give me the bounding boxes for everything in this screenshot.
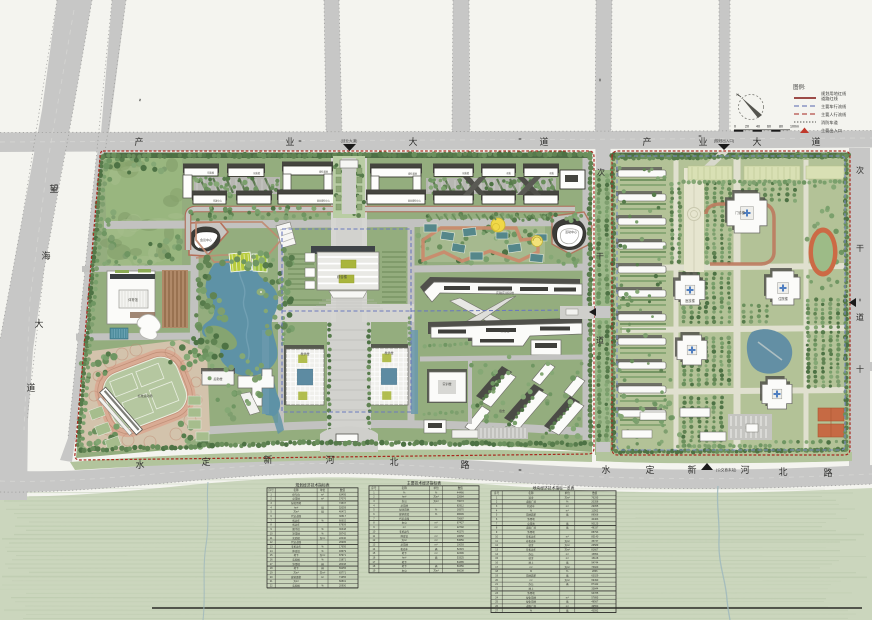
- svg-text:办公: 办公: [402, 499, 408, 503]
- svg-text:万m²: 万m²: [320, 554, 326, 557]
- svg-text:机动车: 机动车: [400, 547, 408, 551]
- svg-text:m²: m²: [435, 539, 438, 542]
- svg-text:m²: m²: [403, 526, 406, 529]
- svg-text:非机动车: 非机动车: [526, 539, 537, 543]
- svg-text:用地面积: 用地面积: [526, 513, 537, 517]
- svg-text:m²: m²: [566, 509, 569, 512]
- svg-text:后勤楼: 后勤楼: [213, 376, 222, 381]
- svg-text:水: 水: [601, 464, 610, 475]
- svg-text:实验楼: 实验楼: [500, 328, 509, 333]
- svg-text:实验楼: 实验楼: [292, 536, 300, 540]
- svg-text:22040: 22040: [339, 537, 347, 540]
- svg-text:新: 新: [263, 454, 272, 465]
- svg-text:名称: 名称: [528, 491, 534, 495]
- svg-text:数值: 数值: [340, 488, 346, 492]
- svg-text:63029: 63029: [591, 575, 599, 578]
- svg-text:40463: 40463: [591, 518, 599, 521]
- svg-text:机动车: 机动车: [527, 504, 535, 508]
- svg-text:m²: m²: [435, 526, 438, 529]
- svg-text:万m²: 万m²: [564, 549, 570, 552]
- svg-text:标准运动场: 标准运动场: [137, 393, 152, 398]
- svg-text:大: 大: [752, 136, 761, 147]
- svg-text:73920: 73920: [591, 566, 599, 569]
- svg-text:绿化用地: 绿化用地: [291, 501, 302, 505]
- svg-text:57895: 57895: [591, 596, 599, 599]
- svg-text:m²: m²: [530, 579, 533, 582]
- svg-text:20358: 20358: [591, 501, 599, 504]
- svg-text:万m²: 万m²: [293, 580, 299, 583]
- svg-text:水: 水: [135, 459, 144, 470]
- svg-text:净用地: 净用地: [527, 530, 535, 534]
- svg-text:20: 20: [745, 125, 749, 129]
- svg-text:宿舍: 宿舍: [528, 543, 534, 547]
- svg-text:26589: 26589: [591, 544, 599, 547]
- svg-text:万m²: 万m²: [293, 572, 299, 575]
- svg-text:76295: 76295: [591, 496, 599, 499]
- svg-text:m²: m²: [435, 535, 438, 538]
- svg-text:宿舍: 宿舍: [499, 408, 505, 413]
- svg-text:道: 道: [539, 136, 548, 147]
- svg-text:业: 业: [698, 137, 707, 147]
- svg-text:2866: 2866: [592, 570, 598, 573]
- svg-text:万m²: 万m²: [564, 566, 570, 569]
- svg-text:道: 道: [811, 136, 820, 147]
- svg-text:(规划出入口): (规划出入口): [714, 138, 734, 143]
- svg-text:69255: 69255: [339, 567, 347, 570]
- svg-text:次: 次: [597, 167, 605, 177]
- svg-text:85140: 85140: [591, 535, 599, 538]
- svg-text:52315: 52315: [457, 548, 465, 551]
- svg-text:数值: 数值: [458, 486, 464, 490]
- svg-text:总用地: 总用地: [400, 503, 408, 507]
- svg-text:67427: 67427: [457, 522, 465, 525]
- svg-text:hm²: hm²: [294, 506, 298, 509]
- svg-text:80: 80: [779, 125, 783, 129]
- svg-text:35737: 35737: [591, 540, 599, 543]
- svg-text:33844: 33844: [591, 588, 599, 591]
- svg-text:定: 定: [201, 456, 210, 467]
- svg-text:18658: 18658: [457, 535, 465, 538]
- svg-text:十: 十: [856, 364, 864, 374]
- svg-text:hm²: hm²: [402, 557, 406, 560]
- svg-text:停车位: 停车位: [292, 492, 300, 496]
- svg-text:地下: 地下: [402, 551, 408, 555]
- svg-text:实验楼: 实验楼: [292, 584, 300, 588]
- svg-text:万m²: 万m²: [433, 496, 439, 499]
- svg-text:10093: 10093: [457, 544, 465, 547]
- svg-text:非机动车: 非机动车: [291, 545, 302, 549]
- svg-text:22792: 22792: [457, 526, 465, 529]
- svg-text:教学楼: 教学楼: [300, 351, 309, 356]
- svg-text:单位: 单位: [434, 486, 440, 490]
- svg-text:29055: 29055: [591, 505, 599, 508]
- svg-text:m²: m²: [435, 544, 438, 547]
- svg-text:66008: 66008: [457, 570, 465, 573]
- svg-text:产: 产: [134, 136, 143, 147]
- svg-text:93679: 93679: [339, 550, 347, 553]
- svg-text:北: 北: [389, 457, 398, 467]
- svg-text:建筑面积: 建筑面积: [291, 575, 302, 579]
- svg-text:名称: 名称: [402, 486, 408, 490]
- svg-text:实验楼: 实验楼: [292, 558, 300, 562]
- svg-text:干: 干: [596, 252, 604, 261]
- svg-text:非机动车: 非机动车: [526, 534, 537, 538]
- svg-text:办公: 办公: [402, 521, 408, 525]
- svg-text:绿化用地: 绿化用地: [526, 600, 537, 604]
- svg-text:40472: 40472: [339, 511, 347, 514]
- svg-text:30517: 30517: [339, 515, 347, 518]
- svg-text:大: 大: [408, 136, 417, 147]
- svg-text:万m²: 万m²: [564, 496, 570, 499]
- svg-text:98699: 98699: [457, 513, 465, 516]
- svg-text:医技楼: 医技楼: [685, 298, 695, 303]
- svg-text:60: 60: [767, 125, 771, 129]
- svg-text:93785: 93785: [591, 592, 599, 595]
- svg-text:15854: 15854: [591, 553, 599, 556]
- svg-text:万m²: 万m²: [320, 537, 326, 540]
- svg-text:图书馆: 图书馆: [292, 527, 300, 531]
- svg-text:60801: 60801: [339, 580, 347, 583]
- svg-text:m²: m²: [435, 522, 438, 525]
- svg-text:N: N: [736, 92, 739, 97]
- svg-text:河: 河: [740, 464, 749, 475]
- svg-text:道路广场: 道路广场: [526, 500, 537, 504]
- svg-text:17695: 17695: [339, 546, 347, 549]
- svg-text:万m²: 万m²: [320, 572, 326, 575]
- svg-text:57076: 57076: [339, 498, 347, 501]
- svg-text:90125: 90125: [591, 522, 599, 525]
- svg-text:11562: 11562: [591, 509, 598, 512]
- svg-text:建筑密度: 建筑密度: [399, 512, 410, 516]
- svg-text:海: 海: [41, 250, 50, 261]
- svg-text:m²: m²: [566, 535, 569, 538]
- svg-text:宿舍: 宿舍: [528, 495, 534, 499]
- svg-text:m²: m²: [321, 498, 324, 501]
- svg-text:教学楼: 教学楼: [384, 350, 393, 355]
- svg-text:机动车: 机动车: [292, 518, 300, 522]
- svg-text:万m²: 万m²: [433, 570, 439, 573]
- svg-text:万m²: 万m²: [293, 511, 299, 514]
- svg-text:100m: 100m: [790, 125, 799, 129]
- svg-text:主要人行流线: 主要人行流线: [821, 111, 847, 118]
- svg-text:绿化用地: 绿化用地: [399, 508, 410, 512]
- svg-text:87971: 87971: [339, 554, 347, 557]
- svg-text:用地面积: 用地面积: [526, 574, 537, 578]
- svg-text:82912: 82912: [457, 504, 465, 507]
- svg-text:52059: 52059: [339, 506, 347, 509]
- svg-text:70687: 70687: [457, 517, 465, 520]
- svg-text:87442: 87442: [591, 583, 599, 586]
- svg-text:绿化用地: 绿化用地: [526, 595, 537, 599]
- svg-text:代征道路: 代征道路: [291, 514, 302, 518]
- svg-text:地上: 地上: [528, 587, 534, 591]
- svg-text:序号: 序号: [494, 491, 500, 495]
- svg-text:m²: m²: [530, 566, 533, 569]
- svg-text:总用地: 总用地: [400, 543, 408, 547]
- svg-text:94744: 94744: [591, 562, 599, 565]
- svg-text:道: 道: [596, 335, 604, 345]
- svg-text:实训楼: 实训楼: [442, 381, 451, 386]
- svg-text:(创业大道): (创业大道): [341, 138, 358, 143]
- svg-text:河: 河: [325, 454, 334, 465]
- svg-text:万m²: 万m²: [564, 579, 570, 582]
- svg-text:40: 40: [756, 125, 760, 129]
- svg-text:消防车道: 消防车道: [821, 119, 839, 126]
- svg-text:84385: 84385: [457, 561, 465, 564]
- svg-text:非机动车: 非机动车: [399, 529, 410, 533]
- svg-text:大: 大: [34, 318, 43, 329]
- svg-text:净用地: 净用地: [527, 591, 535, 595]
- svg-text:定: 定: [645, 464, 654, 475]
- svg-text:m²: m²: [435, 552, 438, 555]
- svg-text:31871: 31871: [339, 559, 347, 562]
- svg-text:路: 路: [823, 467, 832, 478]
- svg-text:办公: 办公: [528, 582, 534, 586]
- svg-text:净用地: 净用地: [527, 517, 535, 521]
- svg-text:74537: 74537: [339, 502, 347, 505]
- svg-text:主要技术经济指标表: 主要技术经济指标表: [407, 480, 441, 485]
- svg-text:28438: 28438: [339, 563, 347, 566]
- svg-text:88793: 88793: [591, 531, 599, 534]
- svg-text:(公交首末站): (公交首末站): [716, 467, 736, 472]
- svg-text:非机动车: 非机动车: [526, 548, 537, 552]
- svg-text:综合楼: 综合楼: [337, 274, 348, 279]
- svg-text:0: 0: [734, 125, 736, 129]
- svg-text:88568: 88568: [591, 514, 599, 517]
- svg-text:40276: 40276: [457, 530, 465, 533]
- svg-text:实验实训基地: 实验实训基地: [496, 290, 514, 295]
- svg-text:道路广场: 道路广场: [526, 526, 537, 530]
- svg-text:北: 北: [778, 467, 787, 477]
- svg-text:hm²: hm²: [402, 496, 406, 499]
- svg-text:路: 路: [460, 459, 469, 470]
- svg-text:m²: m²: [566, 557, 569, 560]
- svg-text:48567: 48567: [591, 601, 599, 604]
- svg-text:万m²: 万m²: [564, 544, 570, 547]
- svg-text:69490: 69490: [591, 579, 599, 582]
- svg-text:主要车行流线: 主要车行流线: [821, 103, 847, 110]
- svg-text:体育馆: 体育馆: [400, 534, 408, 538]
- svg-text:71655: 71655: [339, 576, 347, 579]
- svg-text:数值: 数值: [592, 491, 598, 495]
- svg-text:序号: 序号: [371, 486, 377, 490]
- svg-text:81607: 81607: [591, 549, 599, 552]
- svg-text:79073: 79073: [457, 500, 465, 503]
- svg-text:单位: 单位: [565, 491, 571, 495]
- svg-text:总用地: 总用地: [527, 521, 535, 525]
- svg-text:m²: m²: [566, 505, 569, 508]
- svg-text:办公: 办公: [528, 552, 534, 556]
- svg-text:干: 干: [856, 244, 864, 253]
- svg-text:20900: 20900: [339, 585, 347, 588]
- svg-text:m²: m²: [566, 596, 569, 599]
- svg-text:26995: 26995: [339, 541, 347, 544]
- svg-text:图例:: 图例:: [793, 83, 806, 91]
- svg-text:万m²: 万m²: [433, 500, 439, 503]
- svg-text:地下: 地下: [402, 560, 408, 564]
- svg-text:59742: 59742: [339, 532, 347, 535]
- svg-text:活动中心: 活动中心: [565, 229, 577, 234]
- svg-text:产: 产: [642, 136, 651, 147]
- svg-text:道: 道: [856, 312, 864, 322]
- svg-text:92396: 92396: [457, 552, 465, 555]
- svg-text:门诊楼: 门诊楼: [735, 210, 745, 215]
- svg-text:宿舍: 宿舍: [528, 556, 534, 560]
- svg-text:m²: m²: [321, 576, 324, 579]
- svg-text:体育馆: 体育馆: [292, 549, 300, 553]
- svg-text:净用地: 净用地: [292, 531, 300, 535]
- svg-text:名称: 名称: [294, 488, 300, 492]
- svg-text:望: 望: [49, 183, 58, 194]
- svg-text:80356: 80356: [457, 565, 465, 568]
- svg-text:道路红线: 道路红线: [821, 95, 839, 102]
- svg-text:代征道路: 代征道路: [291, 540, 302, 544]
- svg-text:万m²: 万m²: [401, 539, 407, 542]
- svg-text:序号: 序号: [269, 488, 275, 492]
- svg-text:44466: 44466: [457, 491, 465, 494]
- svg-text:单位: 单位: [320, 488, 326, 492]
- svg-text:业: 业: [285, 137, 294, 147]
- svg-text:48337: 48337: [591, 527, 599, 530]
- svg-text:主要出入口: 主要出入口: [821, 127, 842, 134]
- svg-text:m²: m²: [321, 493, 324, 496]
- svg-text:地上: 地上: [528, 561, 534, 565]
- svg-text:m²: m²: [566, 553, 569, 556]
- svg-text:道: 道: [26, 382, 35, 393]
- svg-text:53656: 53656: [457, 539, 465, 542]
- svg-text:代征道路: 代征道路: [399, 516, 410, 520]
- svg-text:次: 次: [856, 165, 864, 175]
- svg-text:22684: 22684: [457, 496, 465, 499]
- svg-text:净用地: 净用地: [292, 562, 300, 566]
- svg-text:53325: 53325: [457, 557, 465, 560]
- svg-text:会议中心: 会议中心: [200, 237, 212, 242]
- svg-text:体育馆: 体育馆: [128, 297, 138, 302]
- svg-text:63495: 63495: [339, 493, 347, 496]
- svg-text:地块经济技术指标一览表: 地块经济技术指标一览表: [533, 485, 575, 490]
- svg-text:67809: 67809: [339, 524, 347, 527]
- svg-text:万m²: 万m²: [564, 540, 570, 543]
- svg-text:机动车: 机动车: [292, 523, 300, 527]
- svg-text:60602: 60602: [339, 519, 347, 522]
- svg-text:83771: 83771: [339, 572, 347, 575]
- svg-text:办公: 办公: [402, 569, 408, 573]
- svg-text:43592: 43592: [591, 609, 599, 612]
- svg-text:住院楼: 住院楼: [778, 296, 788, 301]
- svg-text:地下: 地下: [402, 564, 408, 568]
- svg-text:总用地: 总用地: [292, 497, 300, 501]
- svg-text:16570: 16570: [457, 509, 465, 512]
- svg-text:36348: 36348: [339, 528, 347, 531]
- svg-text:地下: 地下: [294, 553, 300, 557]
- svg-text:15108: 15108: [591, 557, 599, 560]
- svg-text:地下: 地下: [294, 566, 300, 570]
- svg-text:新: 新: [687, 464, 696, 475]
- svg-text:规划经济技术指标表: 规划经济技术指标表: [295, 482, 329, 487]
